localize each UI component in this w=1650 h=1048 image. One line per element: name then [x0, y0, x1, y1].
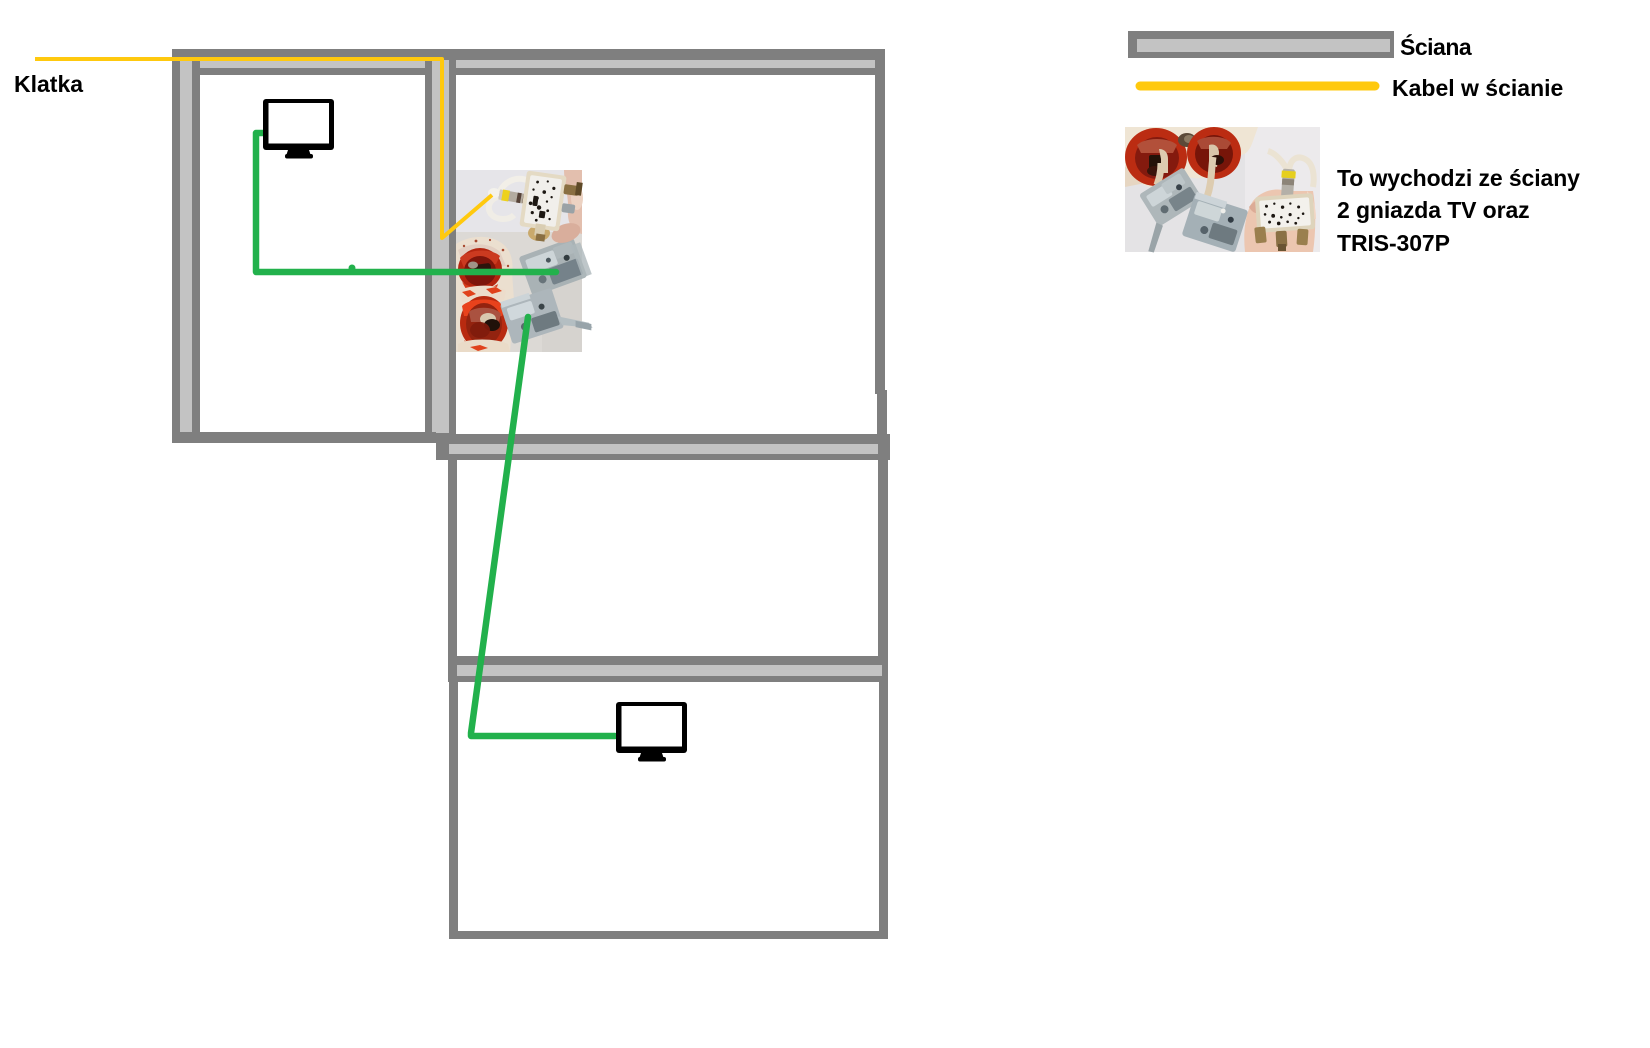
svg-text:2 gniazda TV oraz: 2 gniazda TV oraz: [1337, 197, 1530, 223]
svg-text:Kabel w ścianie: Kabel w ścianie: [1392, 75, 1563, 101]
svg-text:Ściana: Ściana: [1400, 33, 1472, 60]
svg-text:Klatka: Klatka: [14, 71, 83, 97]
svg-text:TRIS-307P: TRIS-307P: [1337, 230, 1450, 256]
svg-text:To wychodzi ze ściany: To wychodzi ze ściany: [1337, 165, 1580, 191]
